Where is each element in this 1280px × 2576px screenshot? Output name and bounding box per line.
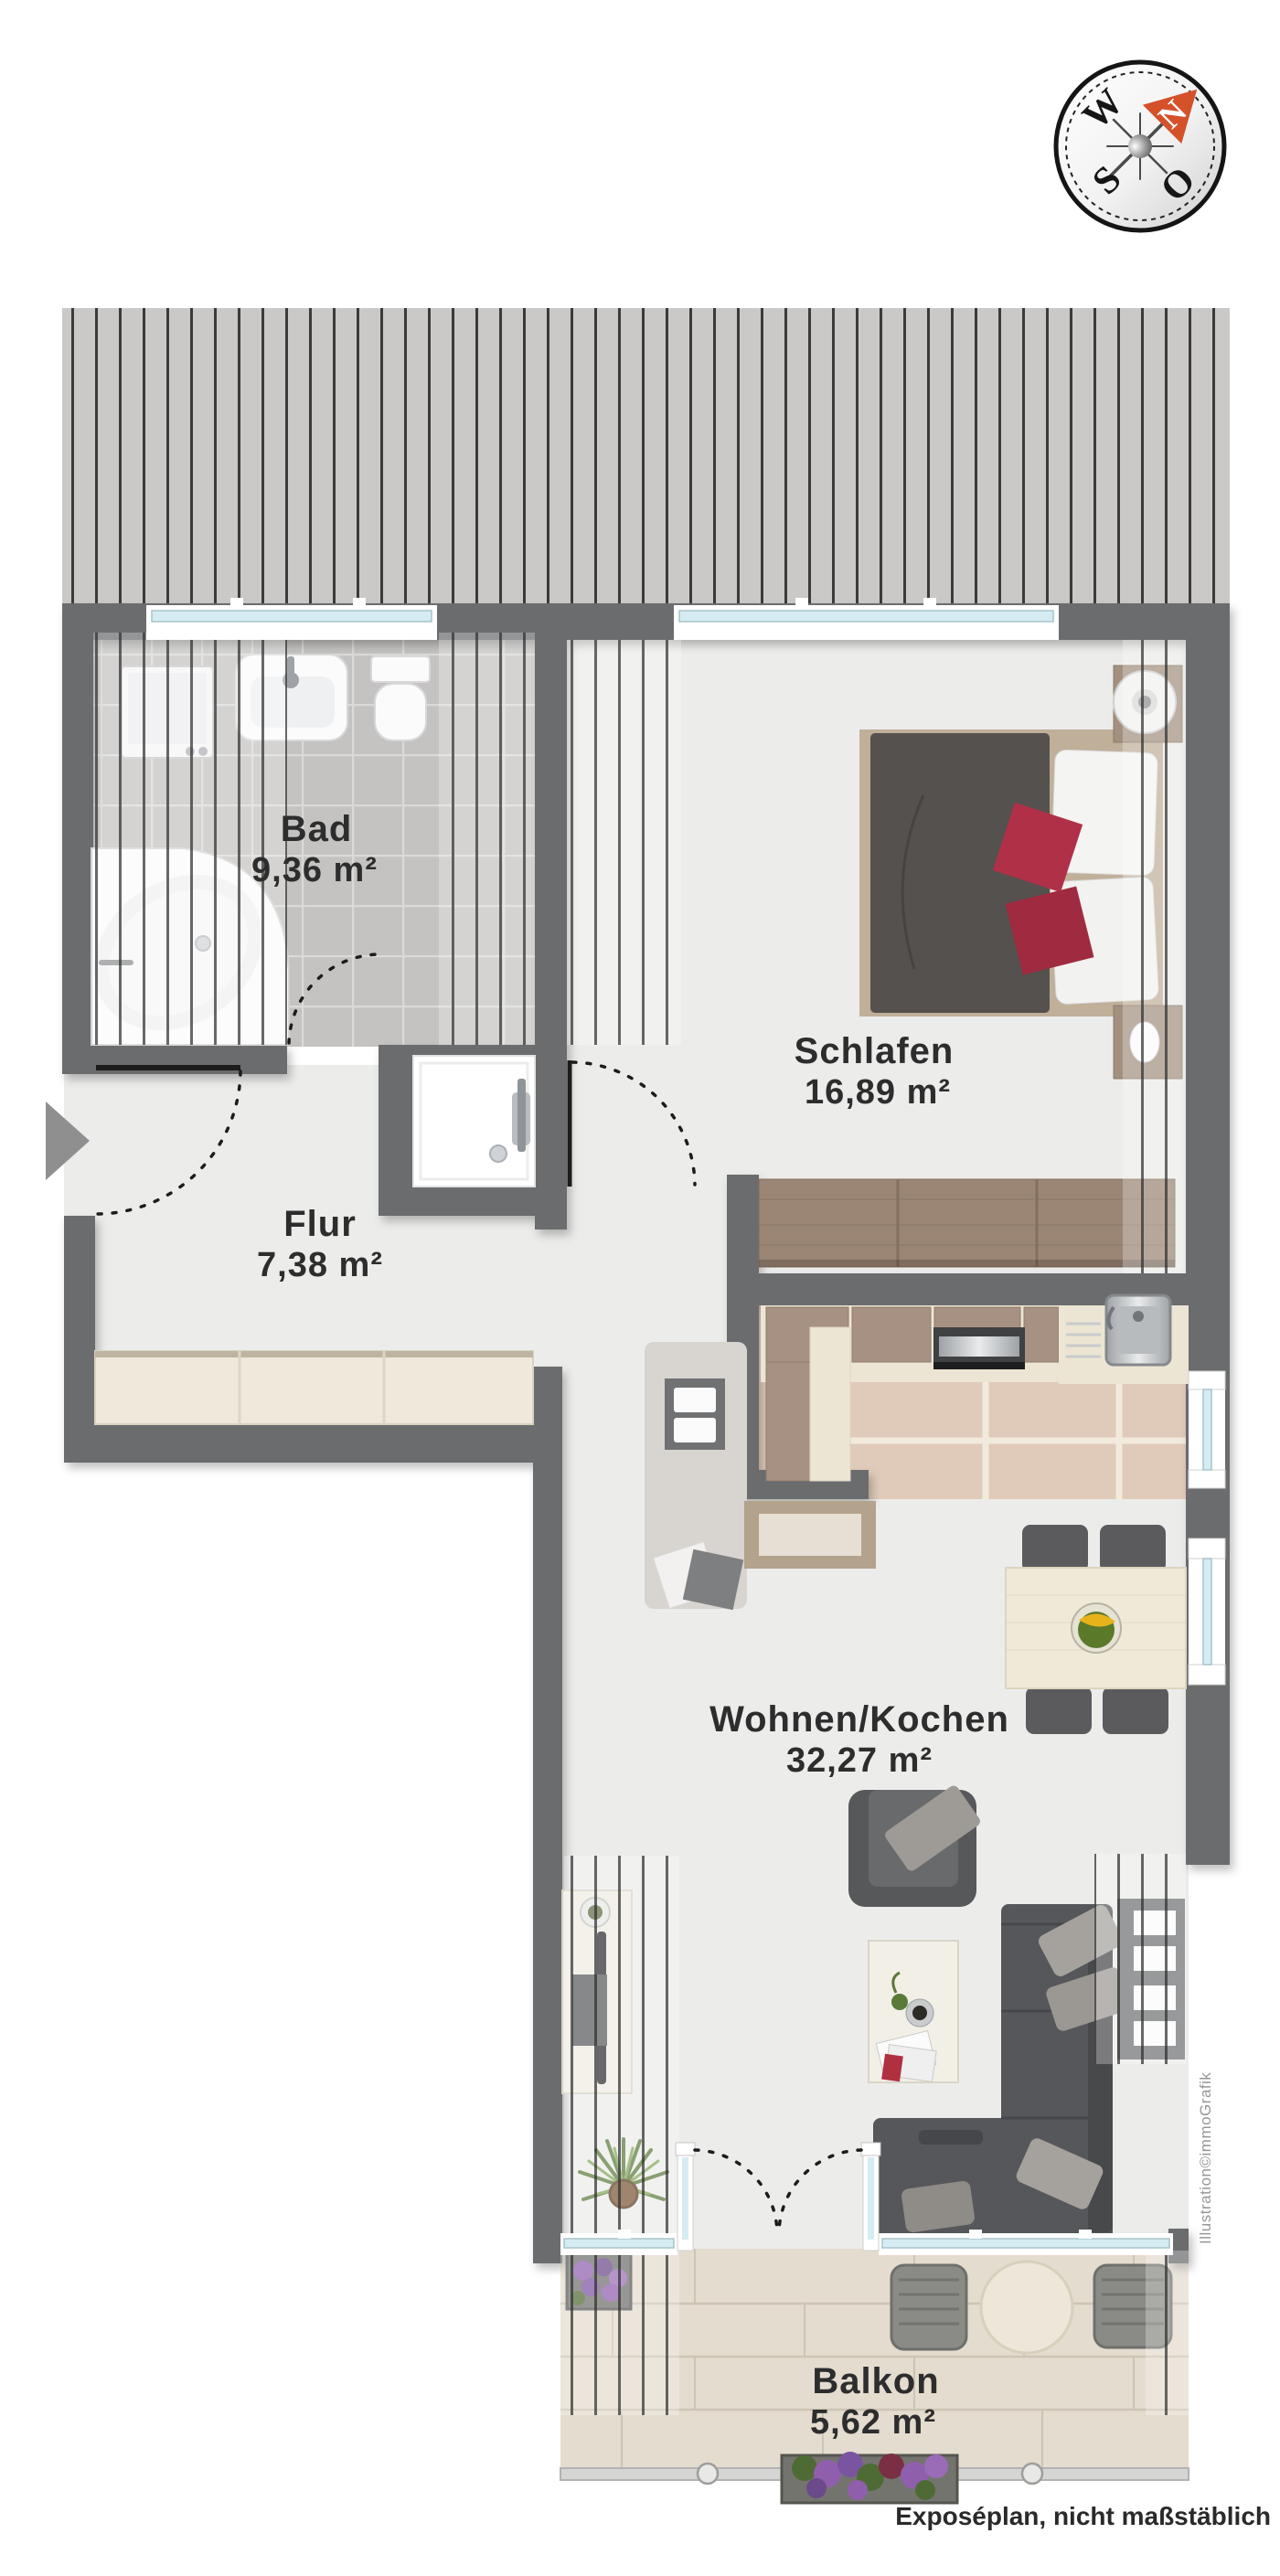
armchair xyxy=(848,1783,982,1907)
dining-chair xyxy=(1026,1687,1092,1734)
entry-bench xyxy=(744,1501,876,1569)
label-bad-area: 9,36 m² xyxy=(251,851,378,889)
label-balkon-area: 5,62 m² xyxy=(810,2403,936,2442)
roof-overhang-band xyxy=(62,308,1230,603)
balcony-door-left-leaf xyxy=(676,2143,695,2251)
hatch-bad-right xyxy=(439,633,535,1045)
label-balkon-name: Balkon xyxy=(812,2361,939,2401)
illustration-watermark: Illustration©immoGrafik xyxy=(1197,2072,1214,2244)
kitchen-side-window xyxy=(1189,1371,1225,1488)
label-flur-area: 7,38 m² xyxy=(257,1246,383,1284)
dining-chair xyxy=(1100,1525,1166,1572)
label-wohnen-name: Wohnen/Kochen xyxy=(709,1699,1009,1740)
flur-bottom-wall xyxy=(64,1424,562,1463)
hatch-bedroom-right xyxy=(1123,640,1186,1273)
shower-top-wall xyxy=(379,1045,567,1056)
fruit-bowl xyxy=(1072,1603,1121,1653)
bad-right-wall xyxy=(535,603,567,1229)
flower-box-railing xyxy=(782,2452,957,2503)
floor-plan-page: N W S O Bad 9,36 m² Flur 7,38 m² Schlafe… xyxy=(0,0,1280,2576)
toilet xyxy=(371,656,430,740)
kitchen-countertop-inner xyxy=(810,1327,850,1481)
kitchen-sink xyxy=(1059,1295,1189,1384)
balcony-chair xyxy=(891,2265,966,2349)
label-schlafen-name: Schlafen xyxy=(795,1031,955,1071)
balcony-door-right-leaf xyxy=(861,2143,880,2251)
console-table xyxy=(665,1378,725,1450)
label-flur-name: Flur xyxy=(283,1204,357,1244)
bed xyxy=(859,729,1163,1017)
stove xyxy=(933,1327,1025,1369)
hatch-living-left xyxy=(564,1856,679,2234)
coffee-table xyxy=(869,1941,958,2082)
compass: N W S O xyxy=(1047,37,1250,240)
living-left-wall xyxy=(533,1367,562,2263)
shower-bottom-wall xyxy=(379,1187,567,1216)
hatch-living-right xyxy=(1094,1854,1186,2064)
shower xyxy=(413,1056,535,1187)
wardrobe xyxy=(759,1179,1175,1267)
hatch-bedroom-left xyxy=(567,640,681,1045)
kitchen-counter-left-leg xyxy=(766,1362,810,1481)
label-bad-name: Bad xyxy=(281,809,353,849)
hatch-balcony-right xyxy=(1146,2251,1189,2415)
label-schlafen-area: 16,89 m² xyxy=(805,1073,951,1112)
dining-side-window xyxy=(1189,1538,1225,1685)
hatch-bad-left xyxy=(93,633,287,1045)
flur-sideboard xyxy=(95,1351,533,1424)
passage-gap-floor xyxy=(530,1216,567,1367)
footer-note: Exposéplan, nicht maßstäblich xyxy=(895,2502,1271,2530)
dining-chair xyxy=(1022,1525,1088,1572)
floor-plan: N W S O Bad 9,36 m² Flur 7,38 m² Schlafe… xyxy=(0,0,1280,2576)
hatch-balcony-left xyxy=(560,2251,679,2415)
balcony-table xyxy=(981,2262,1072,2353)
label-wohnen-area: 32,27 m² xyxy=(786,1741,933,1780)
dining-chair xyxy=(1103,1687,1168,1734)
left-wall-upper xyxy=(62,603,93,1074)
